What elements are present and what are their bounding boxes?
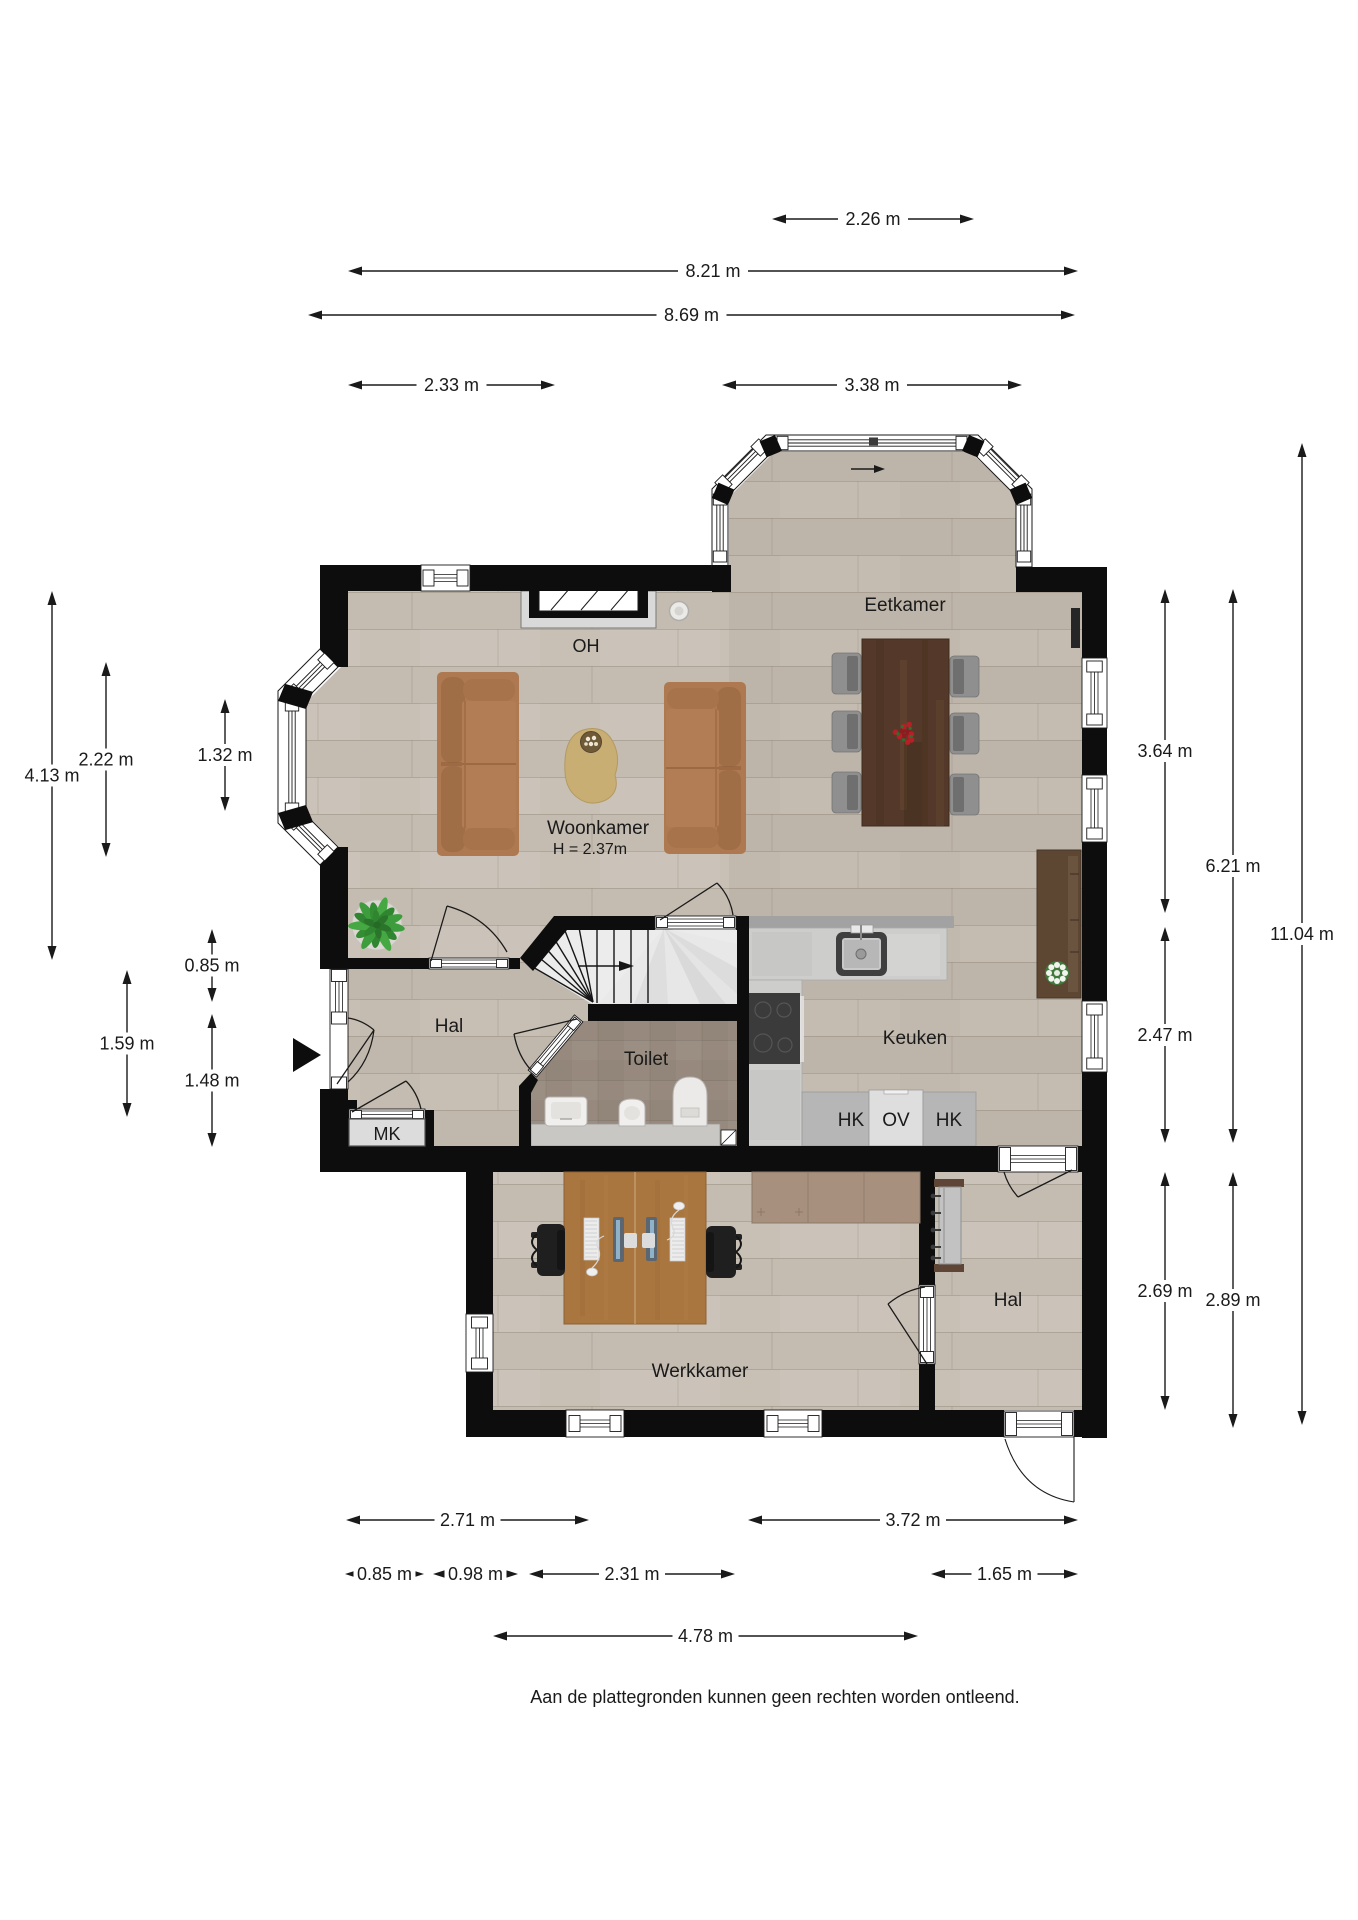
svg-text:Aan de plattegronden kunnen ge: Aan de plattegronden kunnen geen rechten… — [530, 1687, 1019, 1707]
svg-text:8.69 m: 8.69 m — [664, 305, 719, 325]
svg-text:2.47 m: 2.47 m — [1137, 1025, 1192, 1045]
svg-text:Woonkamer: Woonkamer — [547, 818, 650, 839]
svg-text:4.78 m: 4.78 m — [678, 1626, 733, 1646]
svg-text:Eetkamer: Eetkamer — [864, 595, 946, 616]
svg-text:MK: MK — [374, 1124, 401, 1144]
svg-text:2.26 m: 2.26 m — [845, 209, 900, 229]
svg-text:2.71 m: 2.71 m — [440, 1510, 495, 1530]
svg-text:H = 2.37m: H = 2.37m — [553, 841, 627, 858]
svg-text:1.48 m: 1.48 m — [184, 1071, 239, 1091]
svg-text:Toilet: Toilet — [624, 1049, 669, 1070]
svg-text:HK: HK — [838, 1110, 865, 1131]
svg-text:1.65 m: 1.65 m — [977, 1564, 1032, 1584]
svg-text:11.04 m: 11.04 m — [1270, 924, 1334, 944]
svg-text:OH: OH — [573, 636, 600, 656]
svg-text:0.85 m: 0.85 m — [357, 1564, 412, 1584]
svg-text:8.21 m: 8.21 m — [685, 261, 740, 281]
svg-text:HK: HK — [936, 1110, 963, 1131]
svg-text:3.72 m: 3.72 m — [885, 1510, 940, 1530]
svg-text:Werkkamer: Werkkamer — [652, 1361, 749, 1382]
svg-text:0.98 m: 0.98 m — [448, 1564, 503, 1584]
svg-text:1.59 m: 1.59 m — [99, 1034, 154, 1054]
svg-text:0.85 m: 0.85 m — [184, 956, 239, 976]
svg-text:2.22 m: 2.22 m — [78, 750, 133, 770]
svg-text:3.38 m: 3.38 m — [844, 375, 899, 395]
svg-text:2.69 m: 2.69 m — [1137, 1281, 1192, 1301]
svg-text:Keuken: Keuken — [883, 1028, 947, 1049]
svg-text:4.13 m: 4.13 m — [24, 766, 79, 786]
svg-text:6.21 m: 6.21 m — [1205, 856, 1260, 876]
svg-text:1.32 m: 1.32 m — [197, 745, 252, 765]
svg-text:2.89 m: 2.89 m — [1205, 1290, 1260, 1310]
svg-text:Hal: Hal — [994, 1290, 1023, 1311]
svg-text:3.64 m: 3.64 m — [1137, 741, 1192, 761]
svg-text:2.33 m: 2.33 m — [424, 375, 479, 395]
svg-text:OV: OV — [882, 1110, 910, 1131]
svg-text:Hal: Hal — [435, 1016, 464, 1037]
svg-text:2.31 m: 2.31 m — [604, 1564, 659, 1584]
